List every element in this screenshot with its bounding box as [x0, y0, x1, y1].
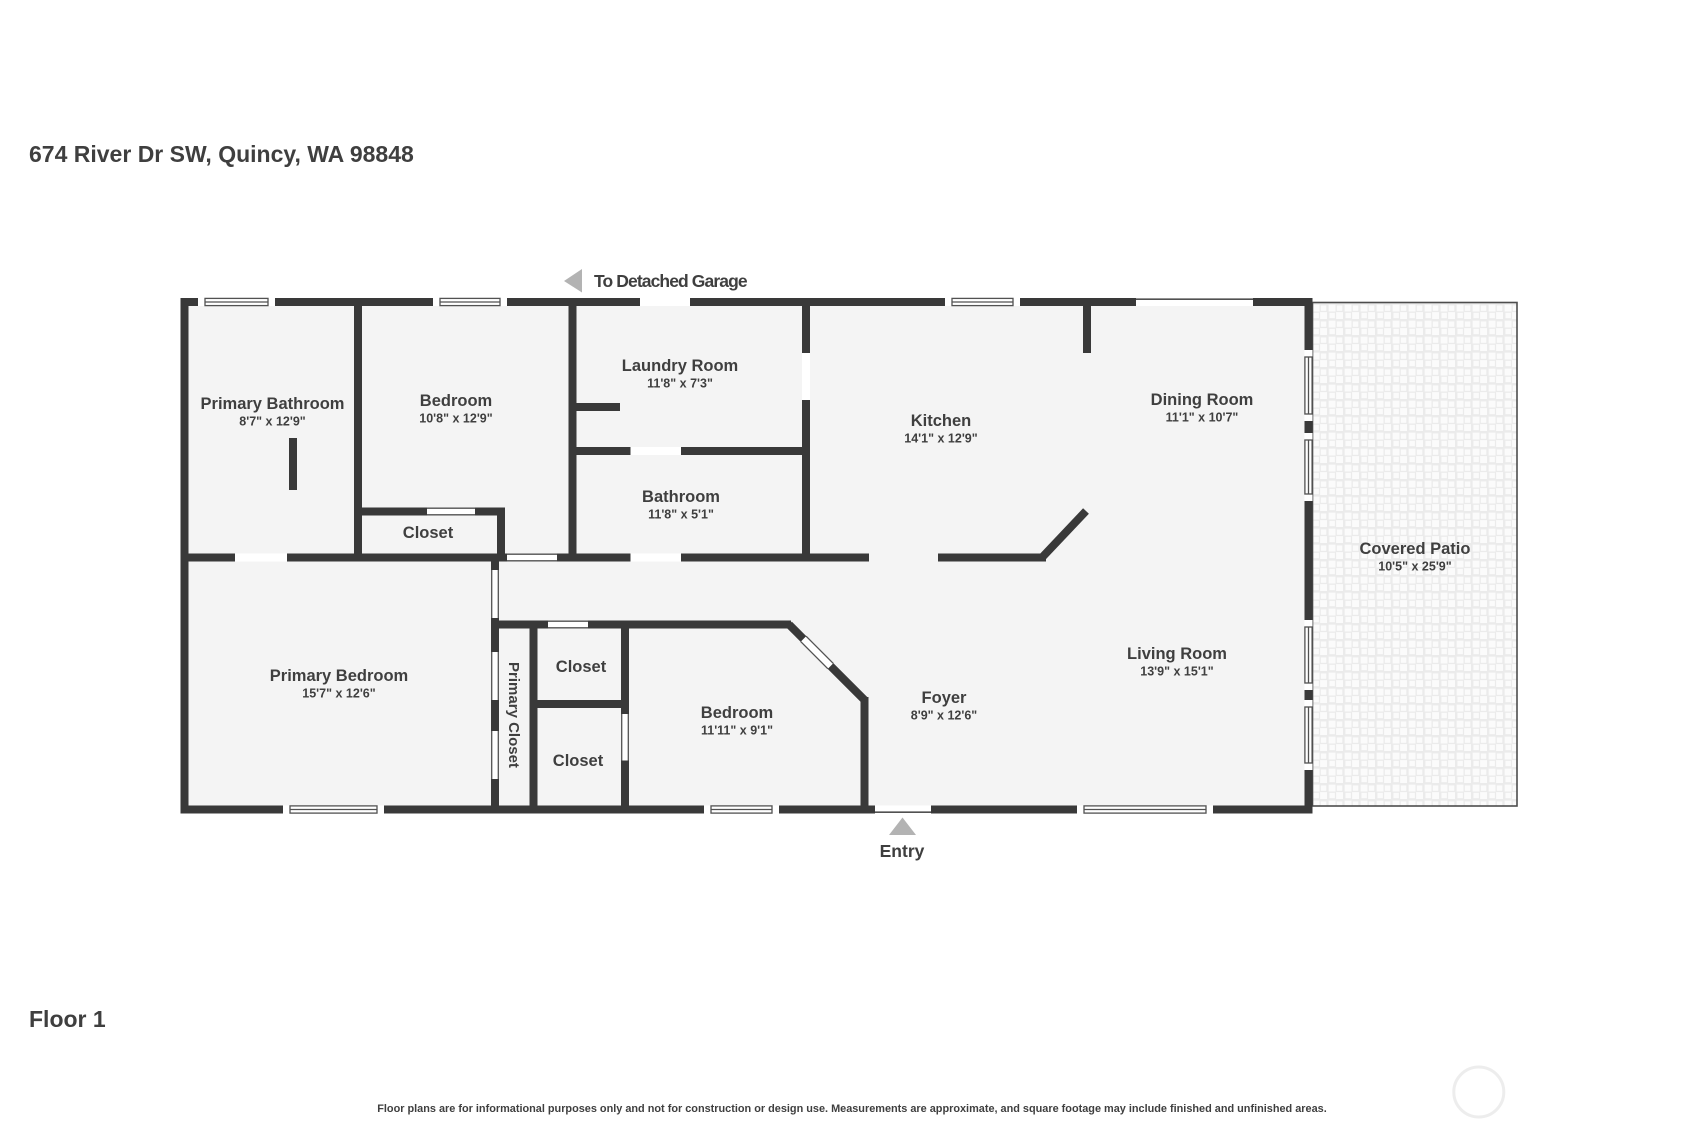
- svg-text:Bedroom: Bedroom: [701, 704, 773, 722]
- svg-text:To Detached Garage: To Detached Garage: [594, 271, 748, 291]
- svg-text:Primary Bathroom: Primary Bathroom: [201, 395, 345, 413]
- svg-text:Foyer: Foyer: [922, 689, 968, 707]
- svg-text:Closet: Closet: [553, 752, 604, 770]
- svg-text:Floor 1: Floor 1: [29, 1006, 106, 1032]
- svg-text:Kitchen: Kitchen: [911, 412, 972, 430]
- svg-text:Entry: Entry: [880, 841, 925, 861]
- svg-text:Bathroom: Bathroom: [642, 488, 720, 506]
- svg-text:10'8" x 12'9": 10'8" x 12'9": [419, 412, 492, 426]
- svg-text:15'7" x 12'6": 15'7" x 12'6": [302, 687, 375, 701]
- svg-text:Floor plans are for informatio: Floor plans are for informational purpos…: [377, 1103, 1326, 1115]
- svg-text:10'5" x 25'9": 10'5" x 25'9": [1378, 560, 1451, 574]
- svg-text:Primary Closet: Primary Closet: [505, 662, 522, 768]
- svg-text:Closet: Closet: [556, 658, 607, 676]
- svg-text:Covered Patio: Covered Patio: [1360, 540, 1471, 558]
- svg-text:Living Room: Living Room: [1127, 645, 1227, 663]
- svg-text:11'1" x 10'7": 11'1" x 10'7": [1166, 411, 1239, 425]
- svg-text:Bedroom: Bedroom: [420, 392, 492, 410]
- svg-text:11'8" x 5'1": 11'8" x 5'1": [648, 508, 714, 522]
- svg-text:13'9" x 15'1": 13'9" x 15'1": [1140, 665, 1213, 679]
- svg-text:14'1" x 12'9": 14'1" x 12'9": [904, 432, 977, 446]
- svg-text:11'8" x 7'3": 11'8" x 7'3": [647, 377, 713, 391]
- svg-text:Laundry Room: Laundry Room: [622, 357, 738, 375]
- svg-text:8'9" x 12'6": 8'9" x 12'6": [911, 709, 978, 723]
- svg-text:Primary Bedroom: Primary Bedroom: [270, 667, 408, 685]
- svg-text:Closet: Closet: [403, 524, 454, 542]
- svg-text:11'11" x 9'1": 11'11" x 9'1": [701, 724, 773, 738]
- svg-text:674 River Dr SW, Quincy, WA 98: 674 River Dr SW, Quincy, WA 98848: [29, 141, 414, 167]
- svg-text:8'7" x 12'9": 8'7" x 12'9": [239, 415, 306, 429]
- svg-text:Dining Room: Dining Room: [1151, 391, 1254, 409]
